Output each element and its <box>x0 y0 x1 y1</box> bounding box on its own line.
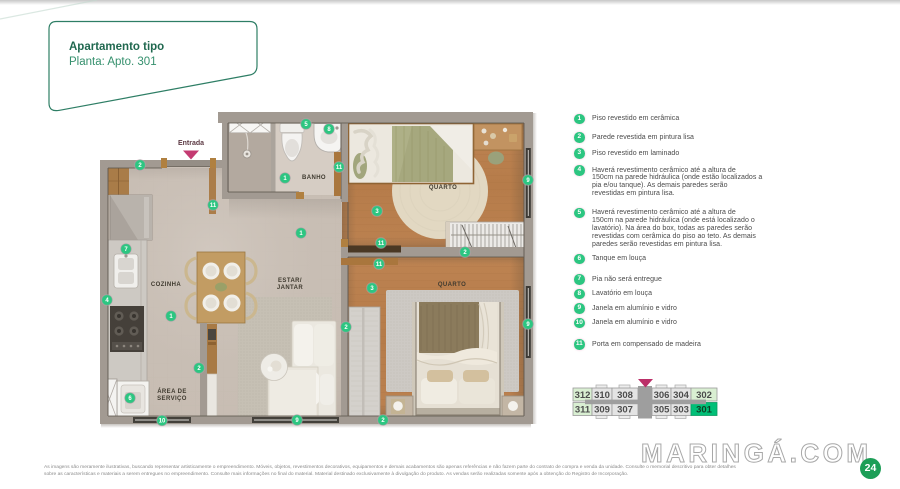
svg-text:11: 11 <box>210 203 217 209</box>
svg-text:ESTAR/: ESTAR/ <box>278 278 302 284</box>
svg-text:311: 311 <box>575 405 591 416</box>
svg-text:305: 305 <box>654 405 671 416</box>
svg-text:307: 307 <box>617 405 633 416</box>
svg-text:301: 301 <box>696 405 713 416</box>
svg-text:QUARTO: QUARTO <box>438 282 466 288</box>
svg-text:309: 309 <box>594 405 610 416</box>
svg-text:11: 11 <box>378 241 385 247</box>
svg-text:10: 10 <box>159 419 166 425</box>
svg-text:COZINHA: COZINHA <box>151 282 181 288</box>
svg-text:ÁREA DE: ÁREA DE <box>157 388 187 395</box>
svg-text:310: 310 <box>594 390 610 401</box>
svg-text:308: 308 <box>617 390 633 401</box>
svg-text:JANTAR: JANTAR <box>277 285 304 291</box>
svg-text:Apartamento tipo: Apartamento tipo <box>69 41 164 53</box>
svg-text:306: 306 <box>654 390 670 401</box>
svg-text:QUARTO: QUARTO <box>429 185 457 191</box>
svg-text:11: 11 <box>336 165 343 171</box>
svg-text:BANHO: BANHO <box>302 175 326 181</box>
svg-text:312: 312 <box>575 390 591 401</box>
svg-text:Planta: Apto. 301: Planta: Apto. 301 <box>69 56 157 68</box>
svg-text:11: 11 <box>376 262 383 268</box>
svg-text:304: 304 <box>673 390 690 401</box>
svg-text:Entrada: Entrada <box>178 140 204 147</box>
svg-text:303: 303 <box>673 405 689 416</box>
svg-text:SERVIÇO: SERVIÇO <box>157 396 187 402</box>
svg-text:302: 302 <box>696 390 712 401</box>
